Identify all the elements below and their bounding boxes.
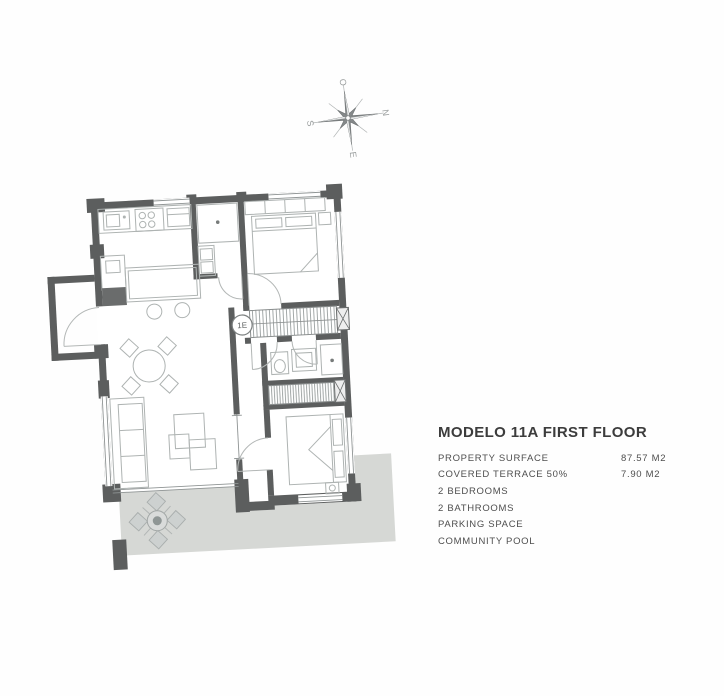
stair-label: 1E: [237, 321, 247, 331]
info-value: 7.90 M2: [621, 469, 700, 480]
page: 1E: [0, 0, 724, 696]
compass-west-label: O: [338, 78, 349, 86]
info-value: 87.57 M2: [621, 453, 700, 464]
floor-plan: 1E: [43, 182, 396, 573]
compass-east-label: E: [348, 151, 359, 158]
info-row: COMMUNITY POOL: [438, 533, 700, 550]
info-label: COMMUNITY POOL: [438, 536, 621, 547]
info-label: 2 BEDROOMS: [438, 486, 621, 497]
info-row: PARKING SPACE: [438, 516, 700, 533]
compass-south-label: S: [305, 120, 316, 127]
floor-plan-svg: 1E: [0, 0, 724, 696]
info-label: PROPERTY SURFACE: [438, 453, 621, 464]
info-label: COVERED TERRACE 50%: [438, 469, 621, 480]
info-rows: PROPERTY SURFACE 87.57 M2 COVERED TERRAC…: [438, 450, 700, 550]
compass-rose: N S E O: [300, 73, 396, 164]
info-label: 2 BATHROOMS: [438, 503, 621, 514]
appliance-block: [102, 287, 127, 306]
info-panel: MODELO 11A FIRST FLOOR PROPERTY SURFACE …: [438, 424, 700, 550]
info-row: PROPERTY SURFACE 87.57 M2: [438, 450, 700, 467]
plan-title: MODELO 11A FIRST FLOOR: [438, 424, 700, 441]
info-row: 2 BATHROOMS: [438, 500, 700, 517]
info-row: COVERED TERRACE 50% 7.90 M2: [438, 467, 700, 484]
info-label: PARKING SPACE: [438, 519, 621, 530]
compass-north-label: N: [380, 109, 391, 117]
info-row: 2 BEDROOMS: [438, 483, 700, 500]
